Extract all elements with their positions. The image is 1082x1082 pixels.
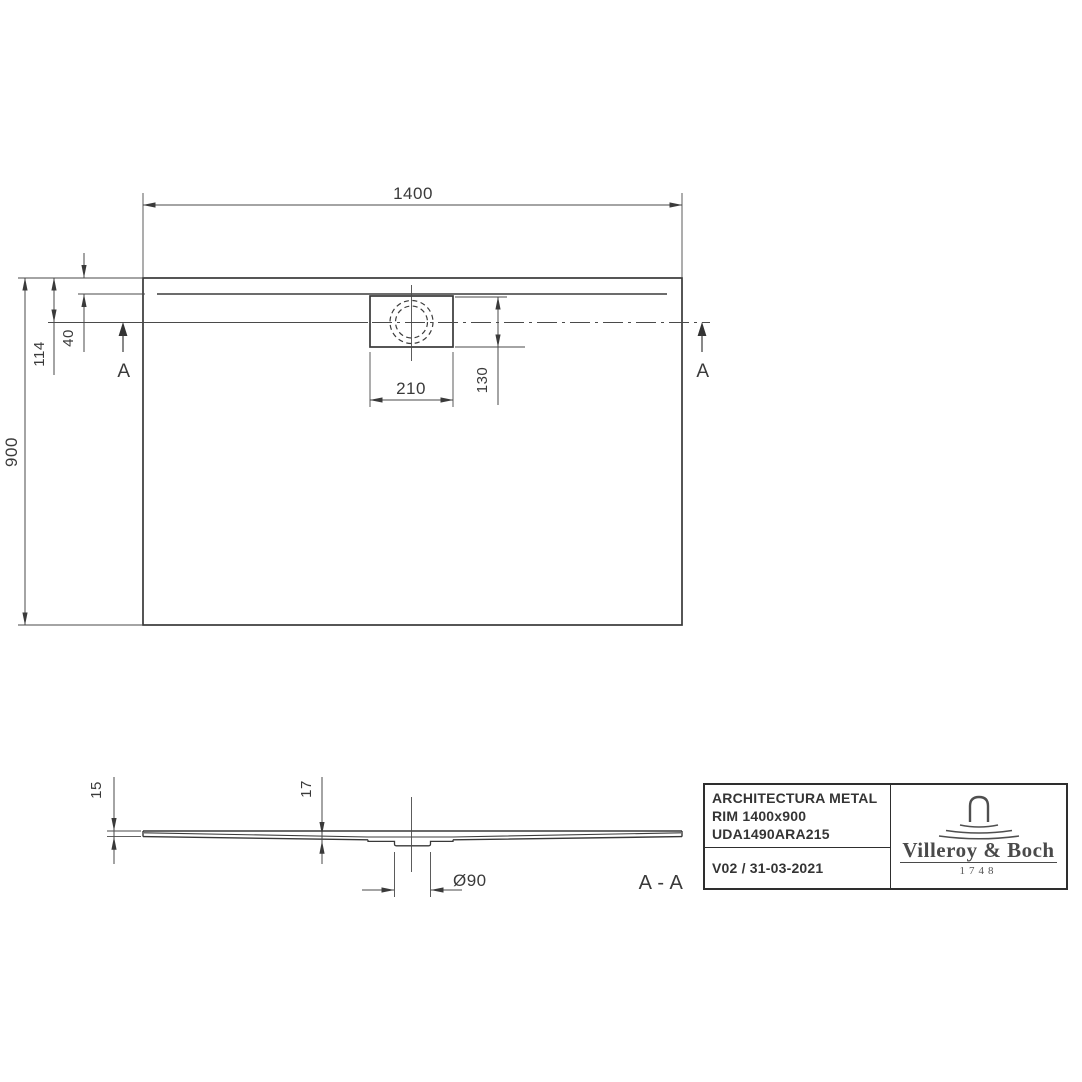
section-floor-slope	[144, 833, 681, 837]
brand-name: Villeroy & Boch	[900, 840, 1056, 863]
logo-ripple-1	[960, 825, 998, 827]
section-marker-right-label: A	[696, 361, 709, 382]
title-block-info: ARCHITECTURA METAL RIM 1400x900 UDA1490A…	[705, 785, 891, 888]
dim-drain-diameter-label: Ø90	[453, 871, 487, 890]
section-label: A - A	[639, 872, 684, 894]
dim-width-label: 1400	[393, 184, 433, 203]
dim-edge-thickness-label: 15	[88, 781, 105, 799]
dim-rim-label: 40	[60, 329, 77, 347]
dim-drain-diameter-90: Ø90	[362, 852, 487, 897]
logo-ripple-2	[946, 831, 1012, 834]
dim-drain-cutout-height-label: 130	[474, 367, 491, 394]
dim-drain-cutout-width-label: 210	[396, 379, 426, 398]
dim-mid-thickness-17: 17	[298, 777, 322, 864]
dim-drain-cutout-width-210: 210	[370, 379, 453, 400]
dim-height-label: 900	[2, 437, 21, 467]
section-marker-left: A	[117, 322, 130, 382]
dim-drain-offset-label: 114	[31, 341, 48, 366]
article-number: UDA1490ARA215	[712, 825, 890, 843]
section-drain-recess	[368, 840, 453, 846]
title-block: ARCHITECTURA METAL RIM 1400x900 UDA1490A…	[703, 783, 1068, 890]
brand-year: 1748	[960, 865, 998, 877]
villeroy-boch-logo-icon	[933, 792, 1025, 840]
section-marker-left-label: A	[117, 361, 130, 382]
brand-cell: Villeroy & Boch 1748	[891, 785, 1066, 888]
shower-tray-drawing: 1400 900 114 40 1	[0, 0, 1082, 1082]
dim-drain-cutout-height-130: 130	[474, 297, 498, 405]
title-block-version-cell: V02 / 31-03-2021	[705, 848, 890, 888]
dim-height-900: 900	[2, 278, 25, 625]
tray-outline	[143, 278, 682, 625]
dim-width-1400: 1400	[143, 184, 682, 205]
technical-drawing-page: 1400 900 114 40 1	[0, 0, 1082, 1082]
logo-arch	[970, 797, 988, 822]
section-marker-right: A	[696, 322, 709, 382]
version-date: V02 / 31-03-2021	[712, 859, 823, 877]
dim-edge-thickness-15: 15	[88, 777, 141, 864]
title-block-product-cell: ARCHITECTURA METAL RIM 1400x900 UDA1490A…	[705, 785, 890, 848]
dim-drain-offset-114: 114	[31, 278, 54, 375]
dim-rim-40: 40	[60, 253, 84, 352]
plan-view: 1400 900 114 40 1	[2, 184, 710, 625]
plan-extension-lines	[18, 193, 682, 625]
section-view: 15 17 Ø90 A - A	[88, 777, 684, 897]
product-name: ARCHITECTURA METAL	[712, 789, 890, 807]
dim-mid-thickness-label: 17	[298, 780, 315, 798]
product-variant: RIM 1400x900	[712, 807, 890, 825]
